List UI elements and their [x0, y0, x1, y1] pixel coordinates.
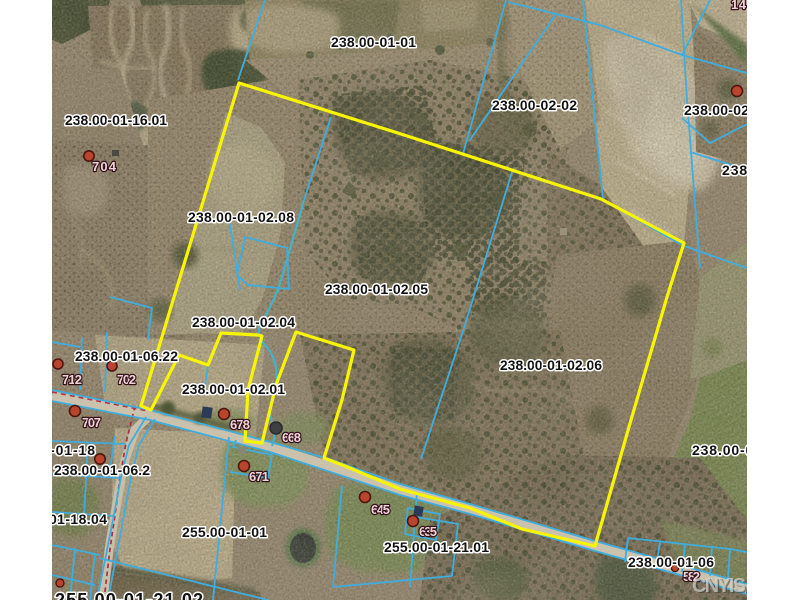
svg-text:671: 671	[249, 469, 269, 484]
svg-text:678: 678	[230, 417, 250, 432]
svg-text:238.00-01-06.22: 238.00-01-06.22	[75, 348, 178, 364]
svg-text:255.00-01-01: 255.00-01-01	[182, 524, 267, 540]
svg-text:238.00-01-02.05: 238.00-01-02.05	[325, 281, 428, 297]
svg-text:238.00-02-02: 238.00-02-02	[492, 97, 577, 113]
svg-text:238.00-01-01: 238.00-01-01	[331, 34, 416, 50]
svg-text:14: 14	[731, 0, 747, 12]
svg-text:707: 707	[82, 415, 101, 430]
svg-text:255.00-01-21.01: 255.00-01-21.01	[384, 539, 489, 555]
svg-text:238.00-01-02.04: 238.00-01-02.04	[192, 314, 295, 330]
svg-text:702: 702	[117, 372, 136, 387]
svg-text:668: 668	[282, 430, 301, 445]
svg-text:CNYIS: CNYIS	[692, 575, 746, 597]
svg-text:712: 712	[62, 372, 82, 387]
svg-text:01-18.04: 01-18.04	[49, 511, 107, 527]
svg-text:704: 704	[92, 159, 117, 174]
svg-text:-01-18: -01-18	[50, 442, 95, 458]
svg-text:238.00-01-02.08: 238.00-01-02.08	[188, 209, 294, 225]
svg-text:238.00-01-02.06: 238.00-01-02.06	[500, 357, 602, 373]
svg-text:238.00-01-06.2: 238.00-01-06.2	[54, 462, 150, 478]
svg-text:645: 645	[371, 502, 390, 517]
svg-text:238.00-01-06: 238.00-01-06	[628, 554, 714, 570]
svg-text:238.00-01-02.01: 238.00-01-02.01	[182, 381, 285, 397]
svg-text:635: 635	[419, 524, 437, 539]
svg-text:238.00-01-16.01: 238.00-01-16.01	[65, 112, 167, 128]
